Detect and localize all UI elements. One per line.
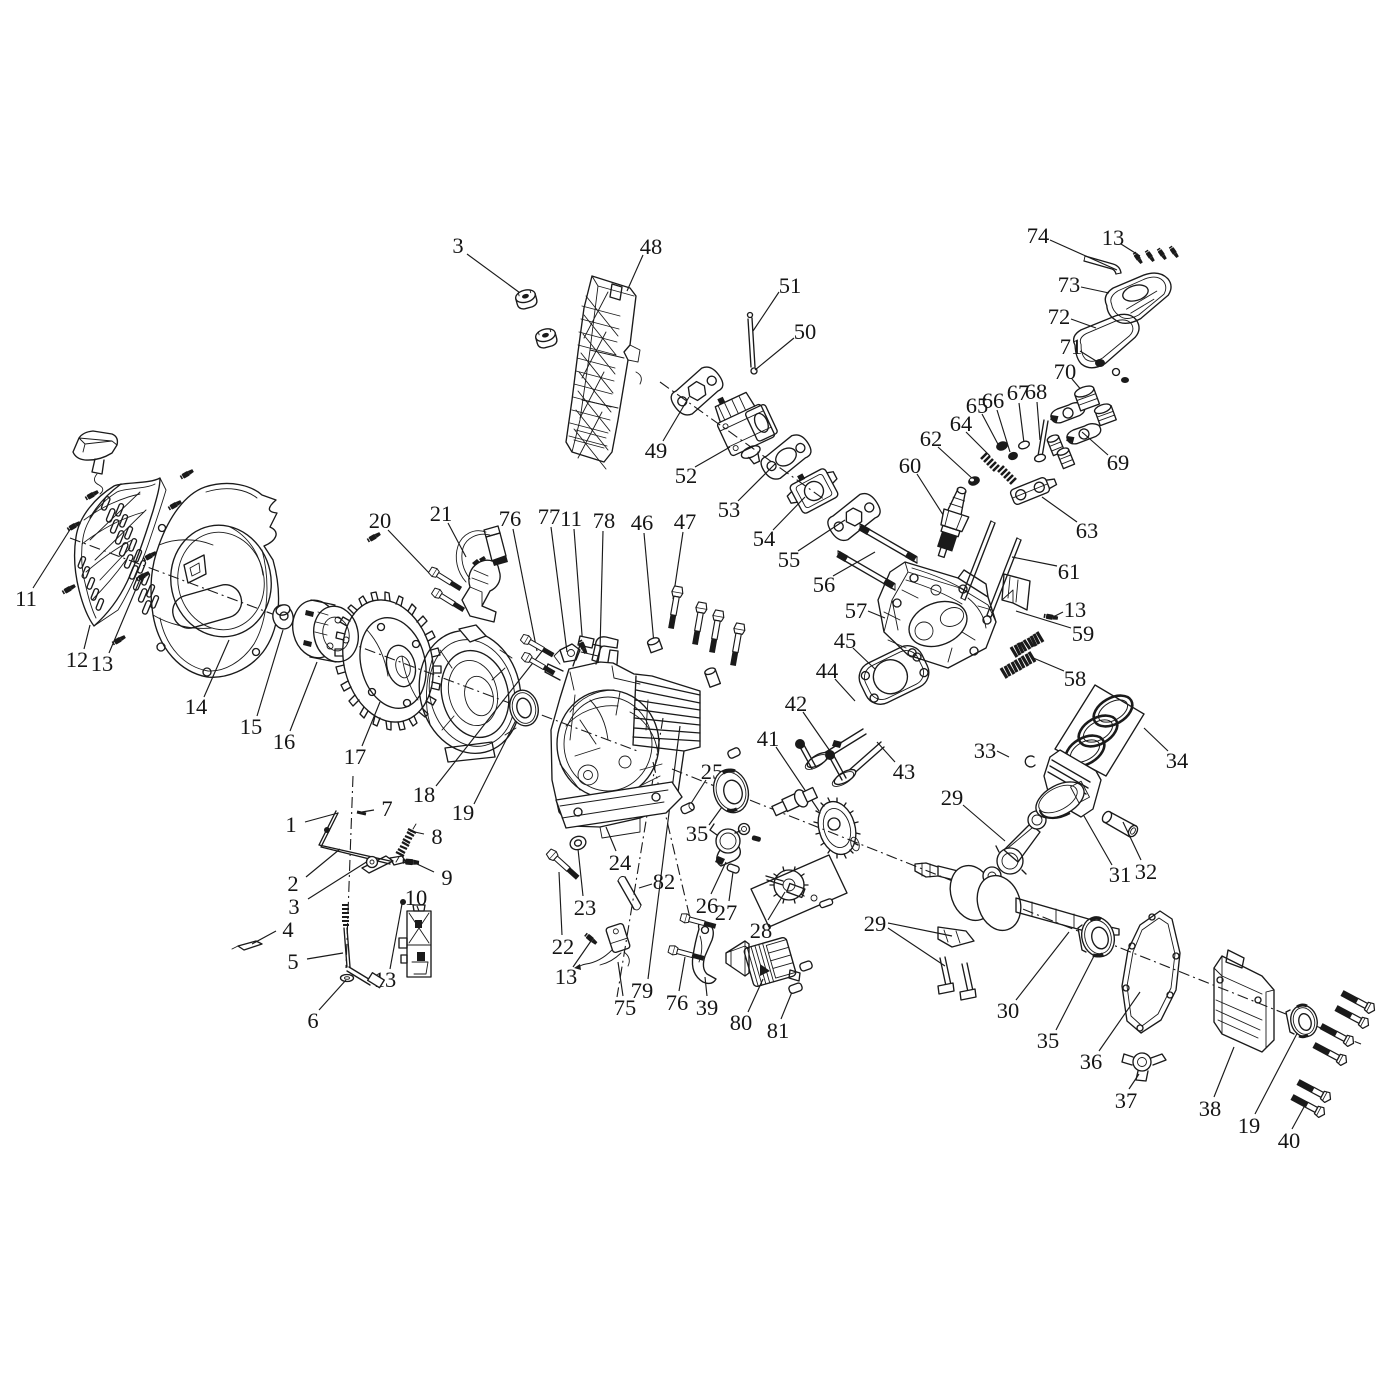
svg-text:54: 54 bbox=[753, 526, 776, 551]
svg-text:46: 46 bbox=[631, 510, 654, 535]
svg-text:82: 82 bbox=[653, 869, 676, 894]
svg-text:2: 2 bbox=[287, 871, 298, 896]
svg-text:16: 16 bbox=[273, 729, 296, 754]
svg-text:49: 49 bbox=[645, 438, 668, 463]
svg-text:32: 32 bbox=[1135, 859, 1158, 884]
svg-text:6: 6 bbox=[307, 1008, 318, 1033]
svg-text:58: 58 bbox=[1064, 666, 1087, 691]
svg-text:8: 8 bbox=[431, 824, 442, 849]
svg-text:76: 76 bbox=[666, 990, 689, 1015]
svg-text:57: 57 bbox=[845, 598, 868, 623]
svg-text:69: 69 bbox=[1107, 450, 1130, 475]
svg-text:27: 27 bbox=[715, 900, 738, 925]
svg-text:63: 63 bbox=[1076, 518, 1099, 543]
svg-text:1: 1 bbox=[285, 812, 296, 837]
svg-text:79: 79 bbox=[631, 978, 654, 1003]
svg-text:28: 28 bbox=[750, 918, 773, 943]
svg-text:21: 21 bbox=[430, 501, 453, 526]
svg-text:37: 37 bbox=[1115, 1088, 1138, 1113]
svg-text:24: 24 bbox=[609, 850, 632, 875]
svg-text:5: 5 bbox=[287, 949, 298, 974]
svg-text:35: 35 bbox=[1037, 1028, 1060, 1053]
svg-text:17: 17 bbox=[344, 744, 367, 769]
svg-text:76: 76 bbox=[499, 506, 522, 531]
svg-text:74: 74 bbox=[1027, 223, 1050, 248]
svg-text:13: 13 bbox=[1102, 225, 1125, 250]
svg-text:3: 3 bbox=[452, 233, 463, 258]
svg-text:68: 68 bbox=[1025, 379, 1048, 404]
svg-text:13: 13 bbox=[91, 651, 114, 676]
svg-text:66: 66 bbox=[982, 388, 1005, 413]
svg-text:34: 34 bbox=[1166, 748, 1189, 773]
svg-text:36: 36 bbox=[1080, 1049, 1103, 1074]
svg-text:18: 18 bbox=[413, 782, 436, 807]
svg-text:29: 29 bbox=[941, 785, 964, 810]
svg-text:77: 77 bbox=[538, 504, 561, 529]
svg-text:11: 11 bbox=[15, 586, 37, 611]
svg-text:42: 42 bbox=[785, 691, 808, 716]
svg-text:20: 20 bbox=[369, 508, 392, 533]
svg-text:50: 50 bbox=[794, 319, 817, 344]
svg-text:59: 59 bbox=[1072, 621, 1095, 646]
svg-text:13: 13 bbox=[555, 964, 578, 989]
svg-text:40: 40 bbox=[1278, 1128, 1301, 1153]
svg-text:19: 19 bbox=[1238, 1113, 1261, 1138]
svg-text:53: 53 bbox=[718, 497, 741, 522]
svg-text:55: 55 bbox=[778, 547, 801, 572]
svg-text:35: 35 bbox=[686, 821, 709, 846]
svg-text:38: 38 bbox=[1199, 1096, 1222, 1121]
svg-text:12: 12 bbox=[66, 647, 89, 672]
svg-text:33: 33 bbox=[974, 738, 997, 763]
svg-text:78: 78 bbox=[593, 508, 616, 533]
svg-text:61: 61 bbox=[1058, 559, 1081, 584]
svg-text:51: 51 bbox=[779, 273, 802, 298]
svg-text:60: 60 bbox=[899, 453, 922, 478]
svg-text:80: 80 bbox=[730, 1010, 753, 1035]
svg-text:13: 13 bbox=[1064, 597, 1087, 622]
svg-text:39: 39 bbox=[696, 995, 719, 1020]
svg-text:43: 43 bbox=[893, 759, 916, 784]
svg-text:45: 45 bbox=[834, 628, 857, 653]
svg-text:72: 72 bbox=[1048, 304, 1071, 329]
svg-text:14: 14 bbox=[185, 694, 208, 719]
svg-text:15: 15 bbox=[240, 714, 263, 739]
svg-text:81: 81 bbox=[767, 1018, 790, 1043]
svg-text:19: 19 bbox=[452, 800, 475, 825]
svg-text:29: 29 bbox=[864, 911, 887, 936]
svg-text:23: 23 bbox=[574, 895, 597, 920]
svg-text:22: 22 bbox=[552, 934, 575, 959]
svg-text:73: 73 bbox=[1058, 272, 1081, 297]
svg-text:56: 56 bbox=[813, 572, 836, 597]
svg-text:7: 7 bbox=[381, 796, 392, 821]
svg-text:71: 71 bbox=[1060, 334, 1083, 359]
svg-text:11: 11 bbox=[560, 506, 582, 531]
svg-text:4: 4 bbox=[282, 917, 293, 942]
svg-text:9: 9 bbox=[441, 865, 452, 890]
svg-text:3: 3 bbox=[288, 894, 299, 919]
svg-text:52: 52 bbox=[675, 463, 698, 488]
svg-text:47: 47 bbox=[674, 509, 697, 534]
svg-text:31: 31 bbox=[1109, 862, 1132, 887]
svg-text:10: 10 bbox=[405, 885, 428, 910]
svg-text:30: 30 bbox=[997, 998, 1020, 1023]
